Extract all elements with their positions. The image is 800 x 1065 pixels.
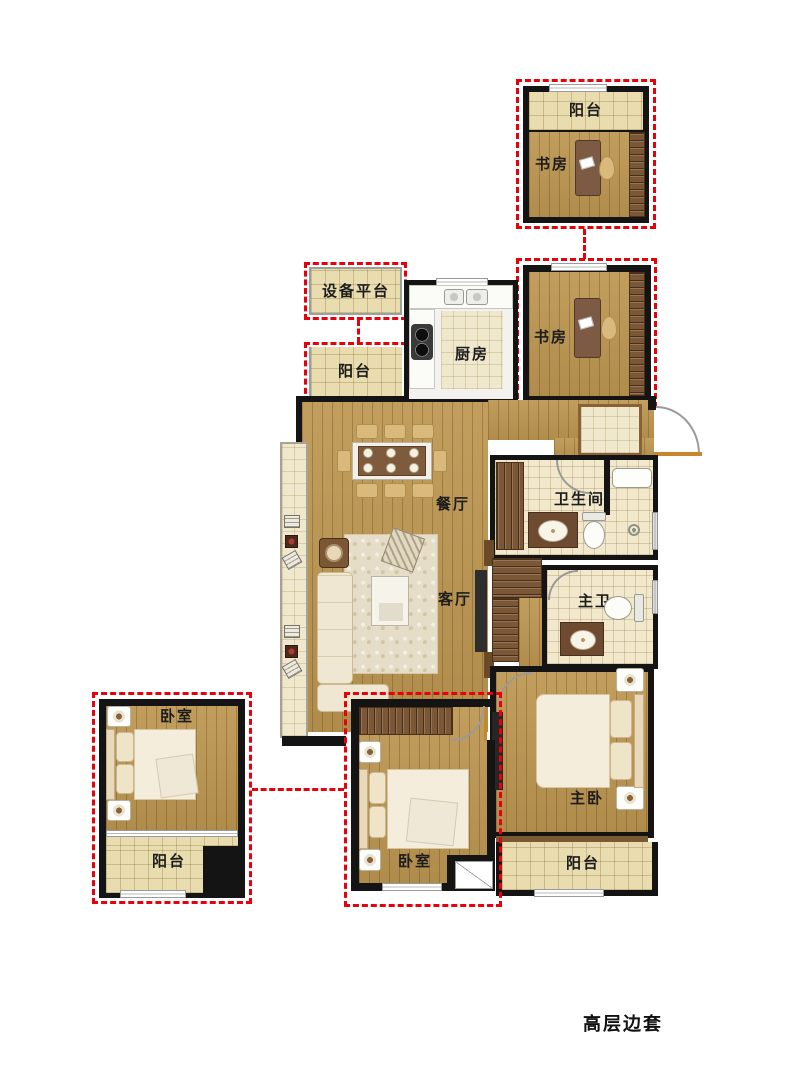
room-label-dining: 餐厅	[436, 497, 470, 512]
table-lamp	[325, 544, 343, 562]
entry-door-arc	[656, 406, 700, 454]
dining-chair	[337, 450, 351, 472]
nightstand	[616, 668, 644, 692]
shower-head	[628, 524, 640, 536]
nightstand	[359, 849, 381, 871]
room-label-bathroom: 卫生间	[554, 492, 605, 507]
room-label-master-bedroom: 主卧	[570, 791, 604, 806]
plate	[386, 463, 396, 473]
headboard	[359, 769, 368, 849]
dining-chair	[433, 450, 447, 472]
dining-chair	[356, 483, 378, 498]
window-master-bath	[652, 580, 658, 614]
window-bedroom-mid	[382, 883, 442, 891]
headboard	[634, 694, 644, 788]
balcony-bottom-left-floor	[106, 837, 238, 846]
dining-chair	[384, 483, 406, 498]
wall-entry-north	[648, 396, 656, 410]
bathroom-closet	[496, 462, 524, 550]
storage-shelf-2	[492, 598, 519, 662]
pillow	[610, 700, 632, 738]
pillow	[116, 732, 134, 762]
chair-top-study	[599, 156, 615, 180]
nightstand	[107, 800, 131, 821]
master-basin	[570, 630, 596, 650]
room-label-bedroom-left: 卧室	[160, 709, 194, 724]
kitchen-sink	[444, 289, 464, 305]
dining-chair	[412, 483, 434, 498]
room-label-balcony-mid: 阳台	[338, 364, 372, 379]
headboard	[106, 729, 115, 800]
chair-mid-study	[601, 316, 617, 340]
room-label-study-mid: 书房	[534, 330, 568, 345]
room-label-bedroom-mid: 卧室	[398, 854, 432, 869]
pillow	[610, 742, 632, 780]
plan-caption: 高层边套	[583, 1010, 663, 1036]
window-bathroom	[652, 512, 658, 550]
entry-step	[455, 861, 493, 889]
room-label-balcony-top: 阳台	[569, 103, 603, 118]
nightstand	[359, 741, 381, 763]
plant-pot	[285, 645, 298, 658]
master-toilet-tank	[634, 594, 644, 622]
coffee-table	[371, 576, 409, 626]
bookshelf-mid-study	[629, 272, 645, 396]
window-master-balcony	[534, 889, 604, 897]
connector-equipment-balcony	[357, 320, 360, 343]
master-bed	[536, 694, 610, 788]
dining-chair	[356, 424, 378, 439]
entry-door-leaf	[654, 452, 702, 456]
balcony-chair	[284, 515, 300, 528]
bathtub	[612, 468, 652, 488]
connector-study	[583, 229, 586, 259]
wall-bm-left	[351, 699, 359, 891]
desk-top-study	[575, 140, 601, 196]
window-balcony-bottom-left	[120, 890, 186, 898]
dining-chair	[412, 424, 434, 439]
toilet	[583, 521, 605, 549]
plate	[386, 448, 396, 458]
room-label-master-balcony: 阳台	[566, 856, 600, 871]
pillow	[116, 764, 134, 794]
room-label-study-top: 书房	[535, 157, 569, 172]
plate	[363, 463, 373, 473]
sofa	[317, 572, 353, 684]
window-bedroom-left-divider	[106, 830, 238, 837]
wall-west-balcony-end	[282, 736, 346, 746]
plate	[409, 463, 419, 473]
entry-mat	[578, 404, 642, 456]
wall-bm-right	[487, 740, 495, 858]
toilet-tank	[582, 512, 606, 521]
room-label-kitchen: 厨房	[455, 347, 489, 362]
stove	[411, 324, 433, 360]
nightstand	[107, 706, 131, 727]
connector-bedrooms	[252, 788, 344, 791]
room-label-balcony-bottom-left: 阳台	[152, 854, 186, 869]
floor-plan: 阳台 书房 书房 设备平台 阳台 厨房	[0, 0, 800, 1065]
master-toilet	[604, 596, 632, 620]
west-balcony	[280, 442, 308, 738]
pillow	[369, 806, 386, 838]
kitchen-sink-2	[466, 289, 488, 305]
tv-panel	[475, 570, 487, 652]
wall-balcony-left-chunk	[203, 846, 245, 893]
dining-chair	[384, 424, 406, 439]
wardrobe	[359, 707, 453, 735]
nightstand	[616, 786, 644, 810]
window-top-balcony	[549, 84, 607, 92]
pillow	[369, 772, 386, 804]
desk-mid-study	[574, 298, 601, 358]
plate	[409, 448, 419, 458]
bathroom-basin	[538, 520, 568, 542]
plant-pot	[285, 535, 298, 548]
room-label-living: 客厅	[438, 592, 472, 607]
balcony-chair	[284, 625, 300, 638]
plate	[363, 448, 373, 458]
room-label-equipment: 设备平台	[322, 284, 390, 299]
blanket	[406, 798, 458, 847]
window-mid-study	[551, 263, 607, 271]
storage-shelf	[492, 558, 542, 598]
bookshelf-top-study	[629, 132, 645, 217]
blanket	[155, 754, 198, 799]
